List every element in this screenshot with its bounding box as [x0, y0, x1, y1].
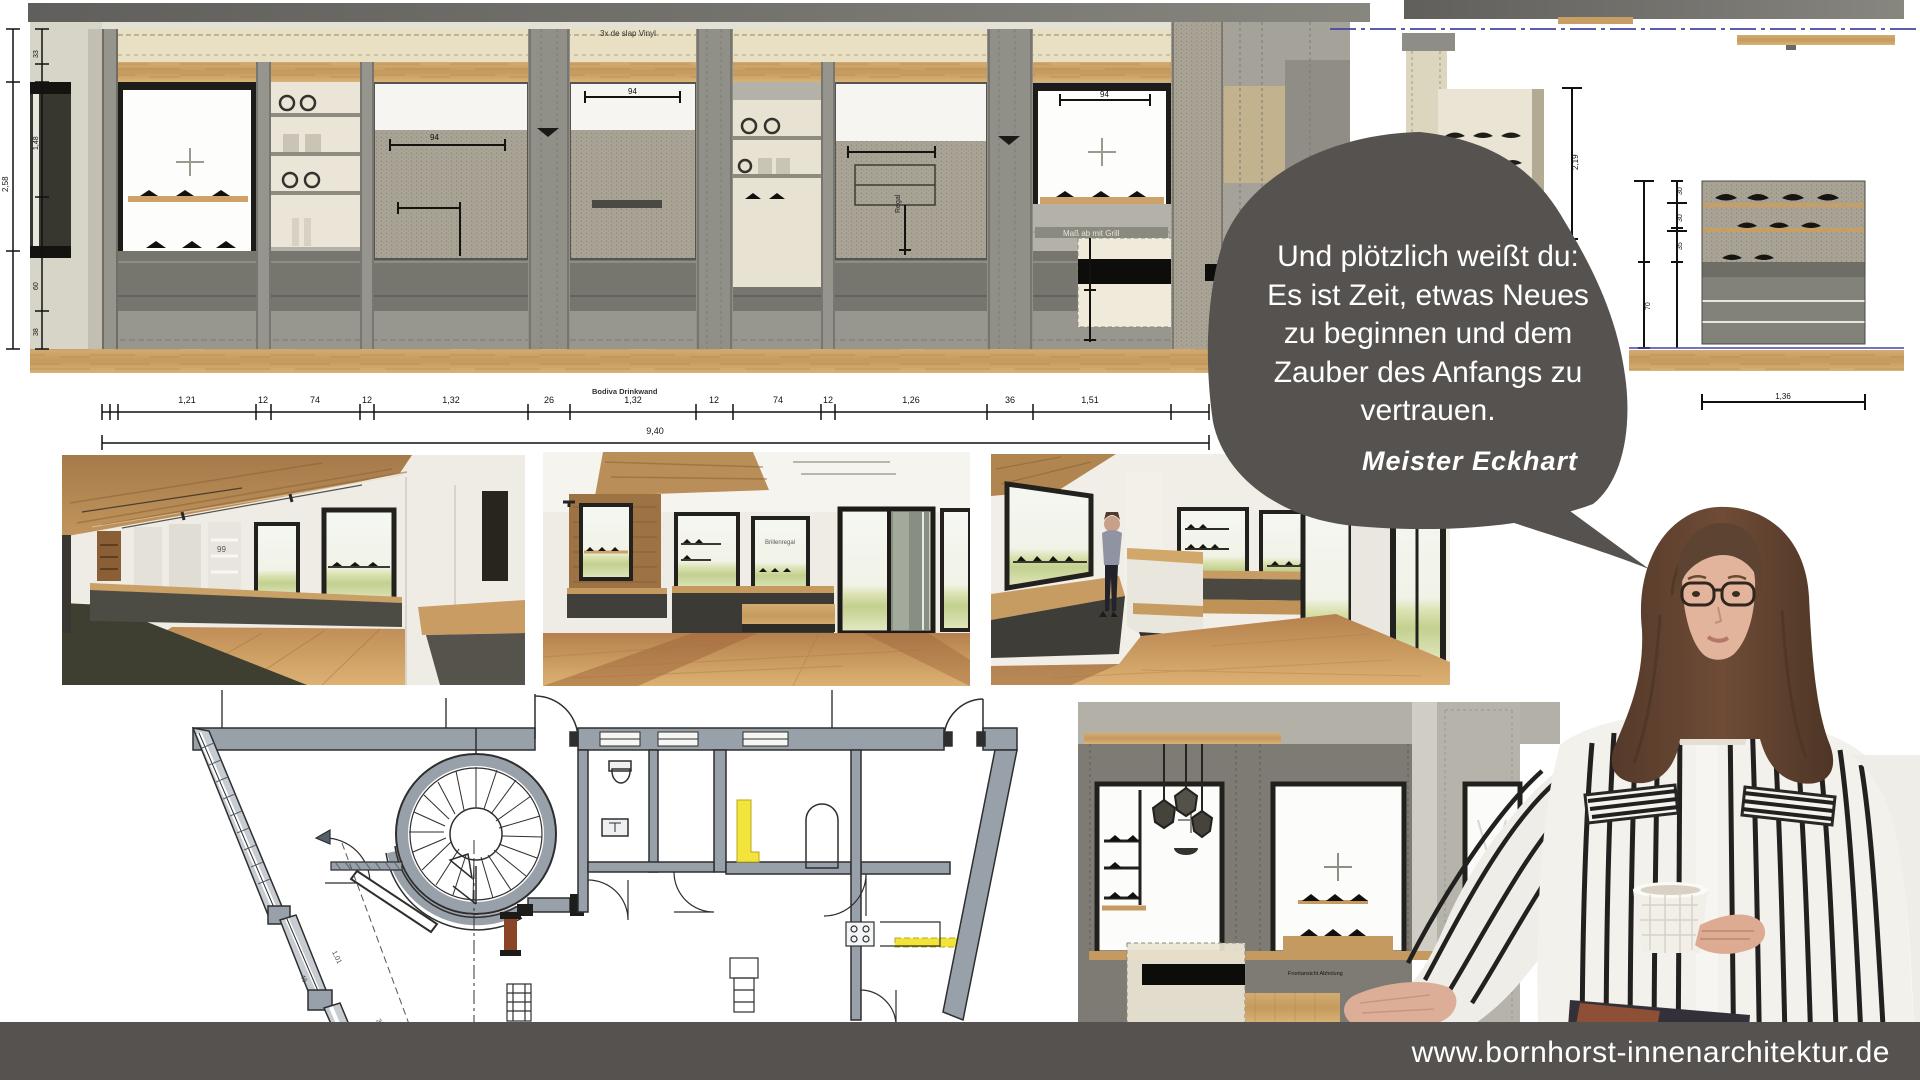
svg-text:94: 94: [1100, 90, 1109, 99]
svg-text:12: 12: [823, 395, 833, 405]
svg-text:Regal: Regal: [895, 194, 902, 213]
svg-text:36: 36: [1005, 395, 1015, 405]
svg-text:3x de slap Vinyl: 3x de slap Vinyl: [600, 29, 656, 38]
svg-text:1,48: 1,48: [33, 136, 40, 150]
svg-text:Brillenregal: Brillenregal: [765, 540, 795, 546]
svg-text:94: 94: [628, 87, 637, 96]
svg-text:1,26: 1,26: [902, 395, 920, 405]
svg-text:1,01: 1,01: [330, 950, 342, 965]
svg-text:99: 99: [217, 545, 226, 554]
svg-text:38: 38: [33, 328, 40, 336]
svg-text:9,40: 9,40: [646, 426, 664, 436]
svg-text:1,21: 1,21: [178, 395, 196, 405]
svg-text:Bodiva Drinkwand: Bodiva Drinkwand: [592, 387, 658, 396]
svg-text:74: 74: [773, 395, 783, 405]
svg-text:60: 60: [33, 282, 40, 290]
svg-text:35: 35: [1677, 242, 1684, 250]
svg-text:1,36: 1,36: [1775, 392, 1791, 401]
svg-text:74: 74: [310, 395, 320, 405]
svg-text:12: 12: [258, 395, 268, 405]
svg-text:2,58: 2,58: [1, 176, 10, 192]
svg-text:Maß ab mit Grill: Maß ab mit Grill: [1063, 229, 1120, 238]
svg-text:1,32: 1,32: [442, 395, 460, 405]
svg-text:12: 12: [709, 395, 719, 405]
svg-text:26: 26: [544, 395, 554, 405]
svg-text:30: 30: [1677, 187, 1684, 195]
svg-text:1,51: 1,51: [1081, 395, 1099, 405]
svg-text:1,32: 1,32: [624, 395, 642, 405]
svg-text:94: 94: [430, 133, 439, 142]
svg-text:12: 12: [362, 395, 372, 405]
svg-text:33: 33: [33, 50, 40, 58]
svg-text:30: 30: [1677, 214, 1684, 222]
